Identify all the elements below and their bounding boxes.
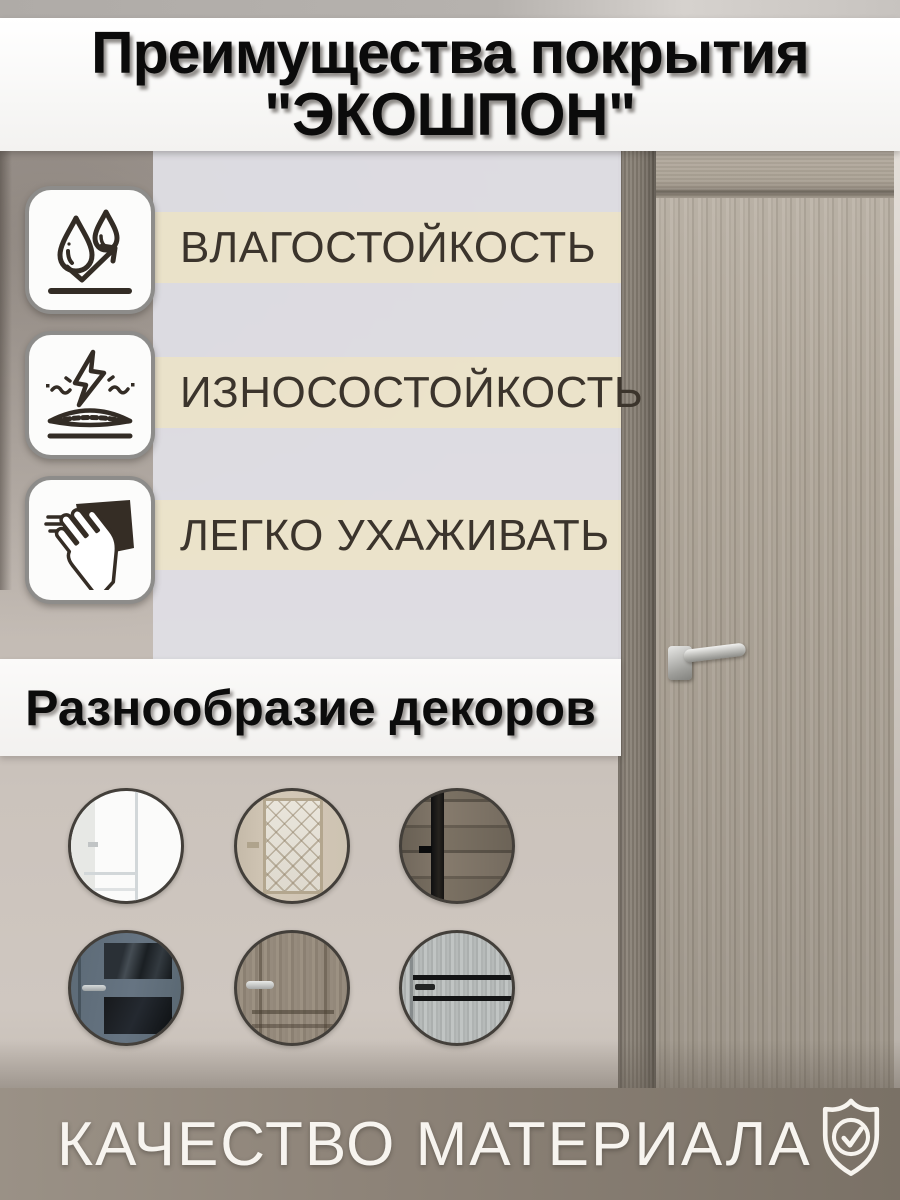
stripe-band [153, 150, 621, 212]
decor-detail [413, 996, 512, 1001]
decor-detail [415, 984, 435, 990]
decor-detail [419, 846, 432, 853]
decor-detail [246, 981, 275, 989]
feature-moisture-label: ВЛАГОСТОЙКОСТЬ [180, 212, 596, 283]
moisture-feature-icon-box [25, 186, 155, 314]
wear-feature-icon-box [25, 331, 155, 459]
water-drops-icon [39, 200, 141, 300]
decor-detail [413, 975, 512, 980]
decor-detail [84, 888, 135, 891]
decor-detail [263, 798, 322, 895]
footer-quality-label: КАЧЕСТВО МАТЕРИАЛА [57, 1109, 812, 1180]
shield-check-icon [818, 1096, 884, 1183]
decor-detail [104, 943, 172, 979]
decor-detail [104, 997, 172, 1034]
wall-corner-shadow [0, 150, 12, 590]
page-title-line1: Преимущества покрытия [91, 23, 809, 84]
decor-dark-rustic-wood-door [399, 788, 515, 904]
feature-care-label: ЛЕГКО УХАЖИВАТЬ [180, 500, 610, 571]
decor-white-classic-door [68, 788, 184, 904]
decor-detail [88, 842, 98, 847]
stripe-band [153, 570, 621, 659]
top-wall-strip [0, 0, 900, 18]
stripe-band [153, 283, 621, 357]
decor-gray-wood-black-slit-door [399, 930, 515, 1046]
decor-taupe-wood-panel-door [234, 930, 350, 1046]
decor-blue-gray-glass-door [68, 930, 184, 1046]
decor-detail [410, 933, 413, 1043]
decors-heading-band: Разнообразие декоров [0, 659, 621, 756]
decor-detail [135, 791, 138, 901]
impact-resistance-icon [39, 345, 141, 445]
stripe-band [153, 428, 621, 500]
decors-heading: Разнообразие декоров [25, 679, 596, 737]
feature-wear-label: ИЗНОСОСТОЙКОСТЬ [180, 357, 643, 428]
floor-shadow [0, 1040, 900, 1088]
decor-detail [84, 872, 135, 875]
care-feature-icon-box [25, 476, 155, 604]
page-title-line2: "ЭКОШПОН" [264, 84, 636, 146]
wall-right-strip [894, 150, 900, 1088]
decor-detail [252, 1010, 333, 1014]
door-jamb [618, 150, 656, 1088]
decor-detail [431, 791, 444, 901]
decor-beige-glass-lattice-door [234, 788, 350, 904]
ecoshpon-poster: Преимущества покрытия "ЭКОШПОН" ВЛАГОСТО… [0, 0, 900, 1200]
wiping-hand-icon [39, 490, 141, 590]
footer-banner: КАЧЕСТВО МАТЕРИАЛА [0, 1088, 900, 1200]
door-photo [656, 198, 894, 1088]
door-top-frame [656, 150, 900, 198]
decor-detail [82, 985, 106, 991]
decor-detail [252, 1024, 333, 1028]
decor-detail [78, 933, 81, 1043]
title-banner: Преимущества покрытия "ЭКОШПОН" [0, 18, 900, 151]
decor-detail [247, 842, 259, 848]
